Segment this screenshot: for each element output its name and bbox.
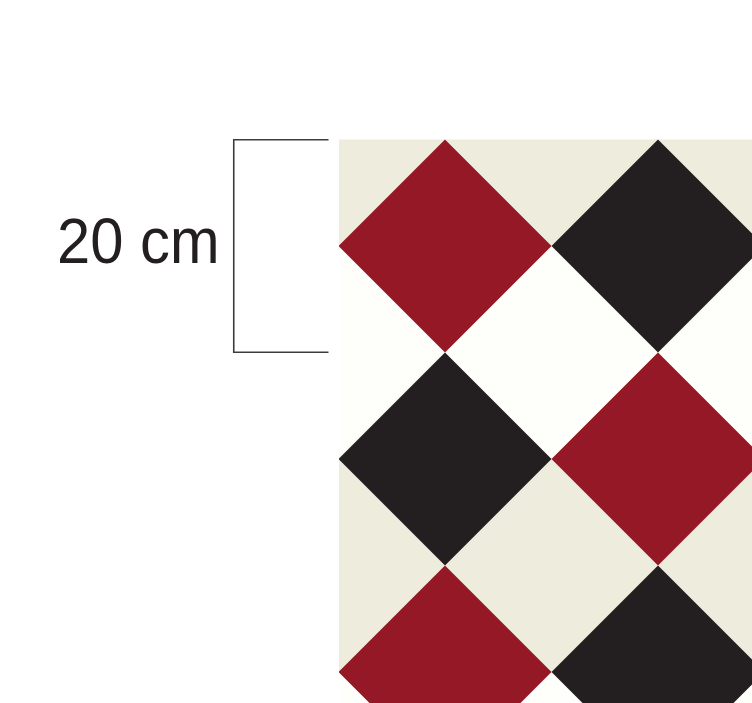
svg-text:20 cm: 20 cm — [57, 206, 220, 277]
